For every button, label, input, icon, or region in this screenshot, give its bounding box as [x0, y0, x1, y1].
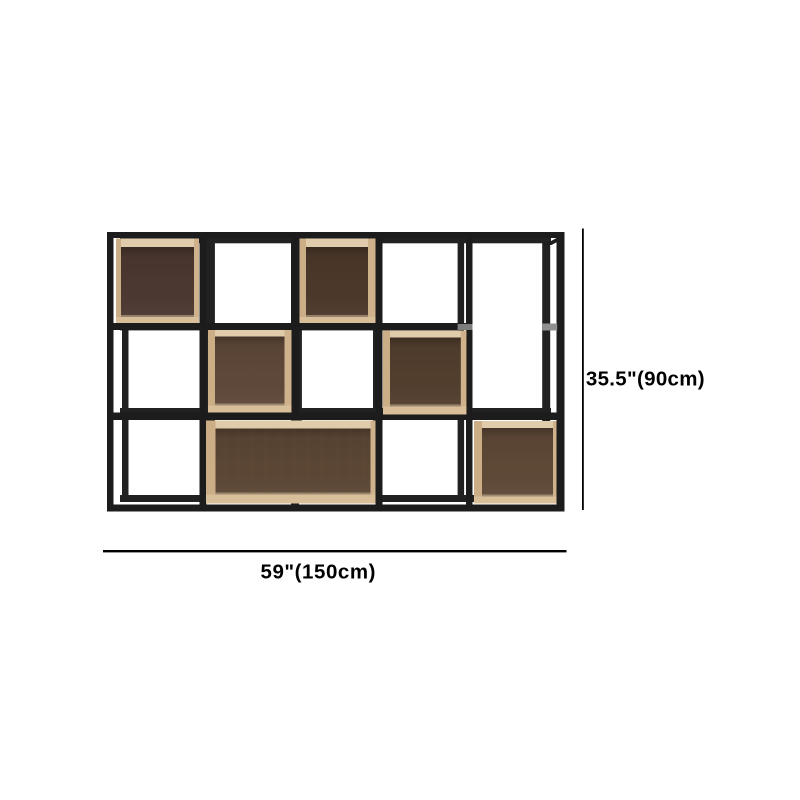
svg-text:35.5"(90cm): 35.5"(90cm) [586, 368, 705, 391]
svg-text:59"(150cm): 59"(150cm) [261, 561, 377, 584]
